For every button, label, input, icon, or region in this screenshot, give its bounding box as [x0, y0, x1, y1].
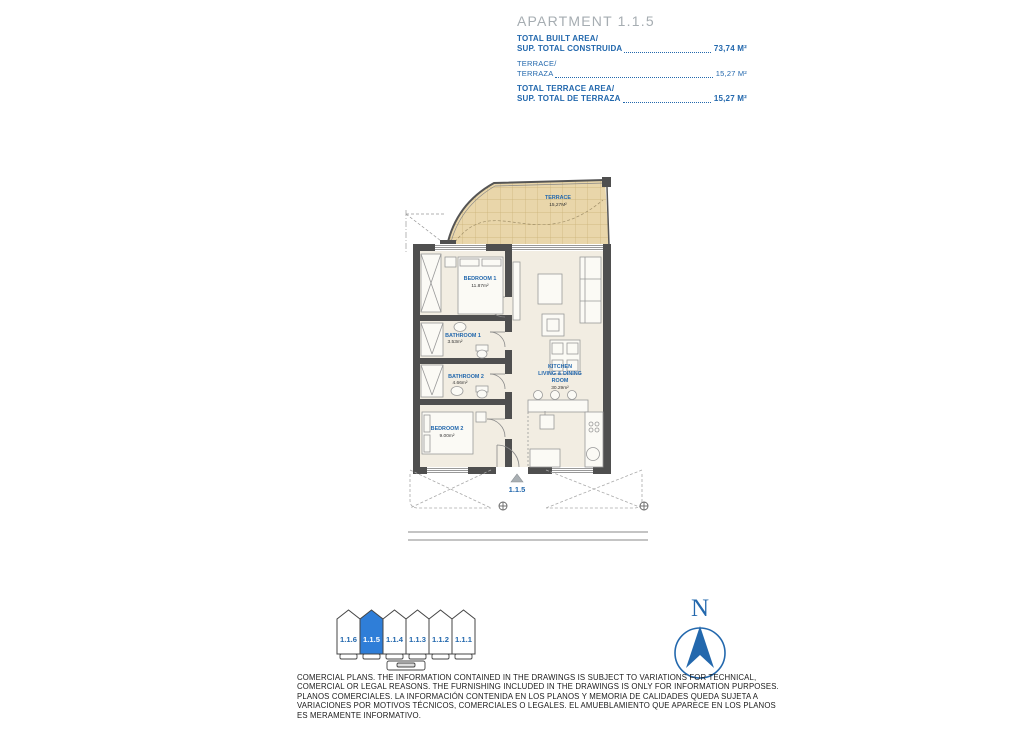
bedroom2-label: BEDROOM 2 [431, 426, 464, 432]
disclaimer-line: COMERCIAL OR LEGAL REASONS. THE FURNISHI… [297, 682, 742, 691]
bathroom2-area: 4.66m² [453, 380, 468, 386]
area-label-es: SUP. TOTAL DE TERRAZA [517, 94, 621, 104]
key-plan-unit [452, 610, 475, 654]
survey-markers [499, 502, 648, 510]
neighbour-patios [410, 470, 642, 508]
terrace-area [447, 177, 611, 246]
unit-label: 1.1.2 [432, 635, 449, 644]
key-plan-unit [406, 610, 429, 654]
area-row-total-terrace: TOTAL TERRACE AREA/ SUP. TOTAL DE TERRAZ… [517, 84, 747, 104]
area-value: 15,27 M² [714, 94, 747, 104]
key-plan: 1.1.6 1.1.5 1.1.4 1.1.3 1.1.2 1.1.1 [331, 606, 481, 674]
walkway [408, 532, 648, 540]
disclaimer-line: PLANOS COMERCIALES. LA INFORMACIÓN CONTE… [297, 692, 742, 701]
disclaimer: COMERCIAL PLANS. THE INFORMATION CONTAIN… [297, 673, 742, 720]
key-plan-units [337, 610, 475, 654]
bathroom2-label: BATHROOM 2 [448, 374, 484, 380]
kitchen-area: 30.29m² [551, 385, 569, 391]
disclaimer-line: COMERCIAL PLANS. THE INFORMATION CONTAIN… [297, 673, 742, 682]
north-letter: N [691, 595, 709, 622]
entrance-unit-label: 1.1.5 [509, 485, 526, 494]
unit-label: 1.1.6 [340, 635, 357, 644]
kitchen-label-3: ROOM [552, 378, 569, 384]
bathroom1-area: 3.53m² [448, 339, 463, 345]
apartment-title: APARTMENT 1.1.5 [517, 13, 747, 29]
dotted-leader [555, 77, 712, 78]
area-label-en: TERRACE/ [517, 59, 747, 69]
bedroom1-area: 11.87m² [471, 283, 489, 289]
entrance-marker: 1.1.5 [509, 474, 526, 494]
key-plan-unit [429, 610, 452, 654]
unit-label: 1.1.4 [386, 635, 404, 644]
kitchen-label-1: KITCHEN [548, 364, 572, 370]
area-label-es: TERRAZA [517, 69, 553, 79]
furniture-bedroom1 [421, 254, 503, 314]
bedroom1-label: BEDROOM 1 [464, 276, 497, 282]
kitchen-label-2: LIVING & DINING [538, 371, 582, 377]
area-value: 73,74 M² [714, 44, 747, 54]
area-label-es: SUP. TOTAL CONSTRUIDA [517, 44, 622, 54]
area-label-en: TOTAL BUILT AREA/ [517, 34, 747, 44]
dotted-leader [623, 102, 711, 103]
disclaimer-line: VARIACIONES POR MOTIVOS TÉCNICOS, COMERC… [297, 701, 742, 710]
floor-plan: TERRACE 15,27M² BEDROOM 1 11.87m² BATHRO… [400, 162, 650, 552]
area-row-built: TOTAL BUILT AREA/ SUP. TOTAL CONSTRUIDA … [517, 34, 747, 54]
unit-label: 1.1.3 [409, 635, 426, 644]
terrace-label: TERRACE [545, 195, 571, 201]
north-arrow-icon [686, 626, 714, 668]
area-value: 15,27 M² [716, 69, 747, 79]
plan-sheet: APARTMENT 1.1.5 TOTAL BUILT AREA/ SUP. T… [0, 0, 1024, 732]
key-plan-unit [360, 610, 383, 654]
unit-label: 1.1.5 [363, 635, 381, 644]
title-block: APARTMENT 1.1.5 TOTAL BUILT AREA/ SUP. T… [517, 13, 747, 109]
dotted-leader [624, 52, 710, 53]
bathroom1-label: BATHROOM 1 [445, 333, 481, 339]
area-label-en: TOTAL TERRACE AREA/ [517, 84, 747, 94]
disclaimer-line: ES MERAMENTE INFORMATIVO. [297, 711, 742, 720]
key-plan-tabs [340, 654, 472, 670]
terrace-area: 15,27M² [549, 202, 567, 208]
bedroom2-area: 9.00m² [440, 433, 455, 439]
area-row-terrace: TERRACE/ TERRAZA 15,27 M² [517, 59, 747, 79]
unit-label: 1.1.1 [455, 635, 473, 644]
key-plan-unit [337, 610, 360, 654]
key-plan-unit [383, 610, 406, 654]
